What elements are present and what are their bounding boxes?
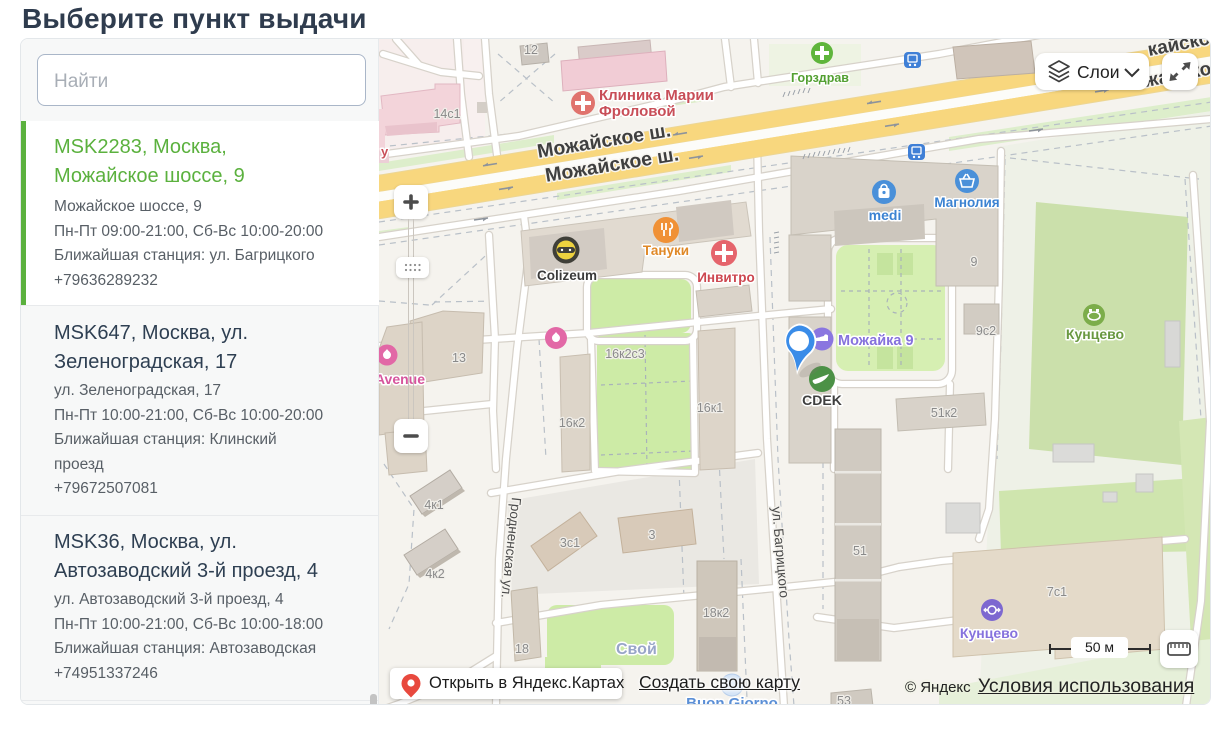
svg-text:Кунцево: Кунцево [960, 625, 1018, 641]
svg-text:Слои: Слои [1077, 62, 1120, 82]
svg-text:16к2с3: 16к2с3 [605, 347, 645, 361]
svg-text:Фроловой: Фроловой [599, 103, 676, 120]
svg-text:16к2: 16к2 [559, 416, 585, 430]
svg-text:12: 12 [524, 43, 538, 57]
svg-text:51: 51 [853, 544, 867, 558]
svg-text:Можайка 9: Можайка 9 [838, 333, 914, 349]
svg-text:CDEK: CDEK [802, 392, 842, 408]
svg-text:16к1: 16к1 [697, 401, 723, 415]
svg-text:4к1: 4к1 [424, 498, 443, 512]
svg-text:Магнолия: Магнолия [934, 195, 999, 210]
svg-text:Avenue: Avenue [379, 371, 425, 387]
svg-text:medi: medi [869, 207, 902, 223]
svg-text:Клиника Марии: Клиника Марии [599, 87, 714, 104]
svg-text:Buon Giorno: Buon Giorno [686, 695, 778, 705]
svg-text:Тануки: Тануки [643, 243, 689, 258]
svg-text:3с1: 3с1 [560, 536, 580, 550]
svg-text:14с1: 14с1 [433, 107, 460, 121]
svg-text:3: 3 [649, 528, 656, 542]
svg-text:Горздрав: Горздрав [791, 71, 849, 85]
svg-text:9: 9 [971, 255, 978, 269]
svg-text:18к2: 18к2 [703, 606, 729, 620]
svg-text:у: у [381, 144, 389, 159]
svg-text:Кунцево: Кунцево [1066, 326, 1124, 342]
svg-text:9с2: 9с2 [976, 324, 996, 338]
svg-text:7с1: 7с1 [1047, 585, 1067, 599]
svg-text:Colizeum: Colizeum [537, 268, 597, 283]
svg-text:53: 53 [837, 694, 851, 705]
svg-text:Свой: Свой [616, 641, 657, 658]
svg-text:18: 18 [515, 642, 529, 656]
svg-text:51к2: 51к2 [931, 406, 957, 420]
svg-text:4к2: 4к2 [425, 567, 444, 581]
svg-text:13: 13 [452, 351, 466, 365]
svg-text:Инвитро: Инвитро [697, 270, 755, 285]
